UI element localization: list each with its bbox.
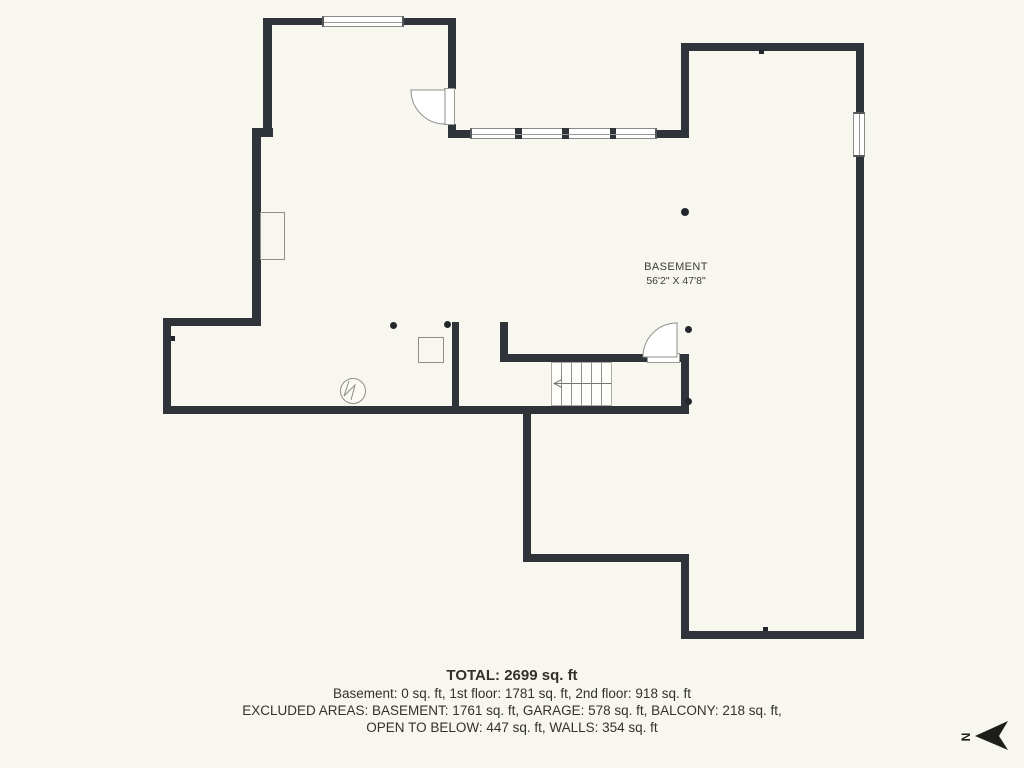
post-dot [685, 326, 692, 333]
window-band-four-pane [470, 128, 657, 139]
wall-tick-mark [171, 336, 175, 341]
window-top-left [322, 16, 404, 27]
room-dimensions: 56'2" X 47'8" [644, 274, 708, 288]
wall-utility-vertical [452, 322, 459, 414]
door-opening-upper-room [444, 88, 455, 125]
door-swing-arc-icon [411, 90, 445, 124]
room-name: BASEMENT [644, 261, 708, 274]
wall-top-right [681, 43, 864, 51]
staircase [552, 363, 612, 406]
room-label: BASEMENT 56'2" X 47'8" [644, 261, 708, 288]
wall-stair-right-vertical [681, 354, 689, 414]
sump-pump-icon [341, 379, 366, 404]
excluded-areas-text-2: OPEN TO BELOW: 447 sq. ft, WALLS: 354 sq… [0, 719, 1024, 736]
wall-left-upper [263, 18, 272, 131]
floor-areas-text: Basement: 0 sq. ft, 1st floor: 1781 sq. … [0, 685, 1024, 702]
wall-top-left-room-right-upper [448, 18, 456, 89]
post-dot [681, 208, 689, 216]
stair-direction-arrow-icon [554, 380, 612, 388]
total-area-text: TOTAL: 2699 sq. ft [0, 666, 1024, 685]
wall-bottom-section-upper-left [523, 406, 531, 562]
door-opening-stairs [647, 353, 680, 363]
wall-bottom-right [681, 631, 864, 639]
wall-niche-rectangle [260, 212, 285, 260]
window-mullion [515, 128, 522, 139]
wall-bottom-section-top [523, 554, 689, 562]
window-mullion [562, 128, 569, 139]
plan-symbols-layer: N [0, 0, 1024, 768]
window-right-wall [853, 112, 865, 157]
utility-square [418, 337, 444, 363]
wall-left-lower [163, 318, 171, 414]
excluded-areas-text-1: EXCLUDED AREAS: BASEMENT: 1761 sq. ft, G… [0, 702, 1024, 719]
window-mullion [610, 128, 616, 139]
wall-bottom-middle [163, 406, 689, 414]
post-dot [390, 322, 397, 329]
wall-bottom-section-left [681, 554, 689, 639]
wall-stair-top [500, 354, 648, 362]
stair-treads [562, 363, 602, 406]
post-dot [444, 321, 451, 328]
door-swing-arc-icon [643, 323, 677, 357]
post-dot [685, 398, 692, 405]
wall-left-arm-horizontal [163, 318, 261, 326]
floorplan-canvas: N BASEMENT 56'2" X 47'8" TOTAL: 2699 sq.… [0, 0, 1024, 768]
area-summary: TOTAL: 2699 sq. ft Basement: 0 sq. ft, 1… [0, 666, 1024, 736]
wall-upper-middle-vertical [681, 43, 689, 138]
wall-tick-mark [763, 627, 768, 631]
wall-tick-mark [759, 50, 764, 54]
